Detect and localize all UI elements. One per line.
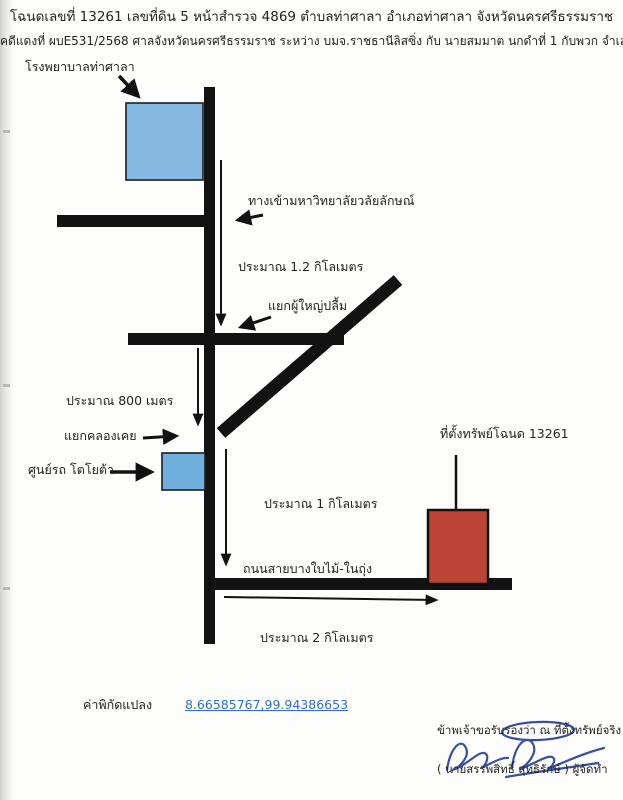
- distance-800m-label: ประมาณ 800 เมตร: [66, 393, 173, 408]
- hospital-block: [126, 103, 203, 180]
- property-location-label: ที่ตั้งทรัพย์โฉนด 13261: [440, 426, 569, 441]
- distance-2km-label: ประมาณ 2 กิโลเมตร: [260, 630, 373, 645]
- road-main-vertical: [204, 87, 215, 644]
- phuyai-pluem-junction-label: แยกผู้ใหญ่ปลื้ม: [268, 298, 347, 313]
- distance-2km-arrow-icon: [224, 597, 436, 600]
- khlong-koei-junction-label: แยกคลองเคย: [64, 428, 137, 443]
- hospital-label: โรงพยาบาลท่าศาลา: [25, 59, 135, 74]
- road-name-label: ถนนสายบางใบไม้-ในถุ่ง: [243, 561, 372, 576]
- distance-1-2km-label: ประมาณ 1.2 กิโลเมตร: [238, 259, 363, 274]
- university-entrance-label: ทางเข้ามหาวิทยาลัยวลัยลักษณ์: [248, 193, 414, 208]
- distance-1km-label: ประมาณ 1 กิโลเมตร: [264, 496, 377, 511]
- court-case-line: คดีแดงที่ ผบE531/2568 ศาลจังหวัดนครศรีธร…: [0, 32, 623, 51]
- scanned-deed-location-sketch: โฉนดเลขที่ 13261 เลขที่ดิน 5 หน้าสำรวจ 4…: [0, 0, 623, 800]
- coordinates-label: ค่าพิกัดแปลง: [83, 697, 152, 712]
- university-entrance-arrow-icon: [238, 215, 263, 220]
- property-block: [428, 510, 488, 584]
- road-middle-horizontal: [128, 333, 344, 345]
- phuyai-pluem-arrow-icon: [241, 317, 271, 327]
- preparer-name-line: ( นายสรรพสิทธิ์ สุทธิรักษ์ ) ผู้จัดทำ: [437, 763, 608, 777]
- coordinates-link[interactable]: 8.66585767,99.94386653: [185, 697, 348, 712]
- hospital-arrow-icon: [119, 76, 138, 96]
- toyota-center-label: ศูนย์รถ โตโยต้า: [28, 462, 114, 477]
- road-top-left-horizontal: [57, 215, 207, 227]
- toyota-block: [162, 453, 205, 490]
- khlong-koei-arrow-icon: [143, 436, 176, 438]
- deed-title-line: โฉนดเลขที่ 13261 เลขที่ดิน 5 หน้าสำรวจ 4…: [0, 5, 623, 27]
- certification-line: ข้าพเจ้าขอรับรองว่า ณ ที่ตั้งทรัพย์จริง: [437, 724, 621, 738]
